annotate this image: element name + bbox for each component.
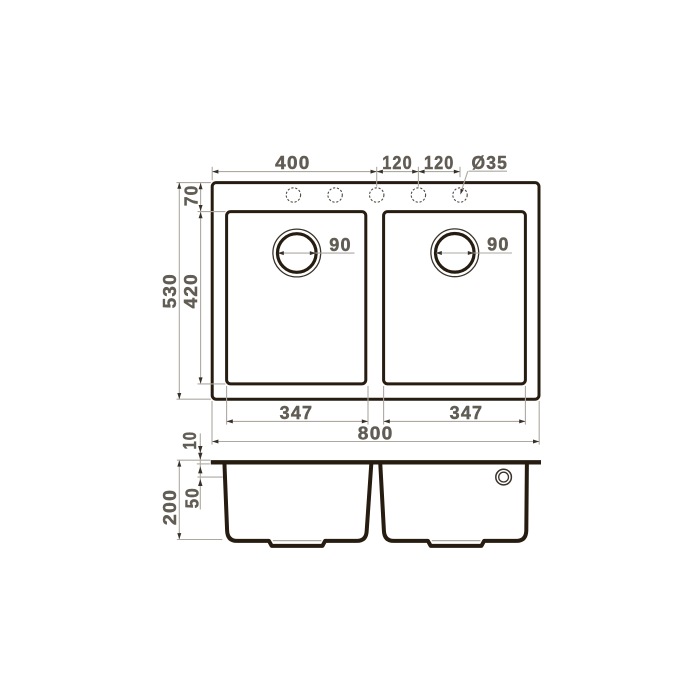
svg-text:90: 90 [329, 235, 352, 255]
svg-text:10: 10 [180, 431, 200, 450]
svg-text:347: 347 [280, 403, 314, 423]
svg-text:400: 400 [275, 153, 311, 173]
svg-text:530: 530 [160, 273, 180, 308]
svg-text:120: 120 [424, 153, 455, 173]
svg-text:70: 70 [182, 185, 202, 207]
svg-text:120: 120 [382, 153, 413, 173]
svg-text:90: 90 [487, 235, 510, 255]
svg-text:347: 347 [450, 403, 484, 423]
svg-text:Ø35: Ø35 [472, 153, 509, 173]
svg-text:800: 800 [358, 423, 394, 443]
svg-text:50: 50 [182, 487, 202, 508]
svg-text:420: 420 [181, 273, 201, 308]
svg-text:200: 200 [160, 489, 180, 526]
